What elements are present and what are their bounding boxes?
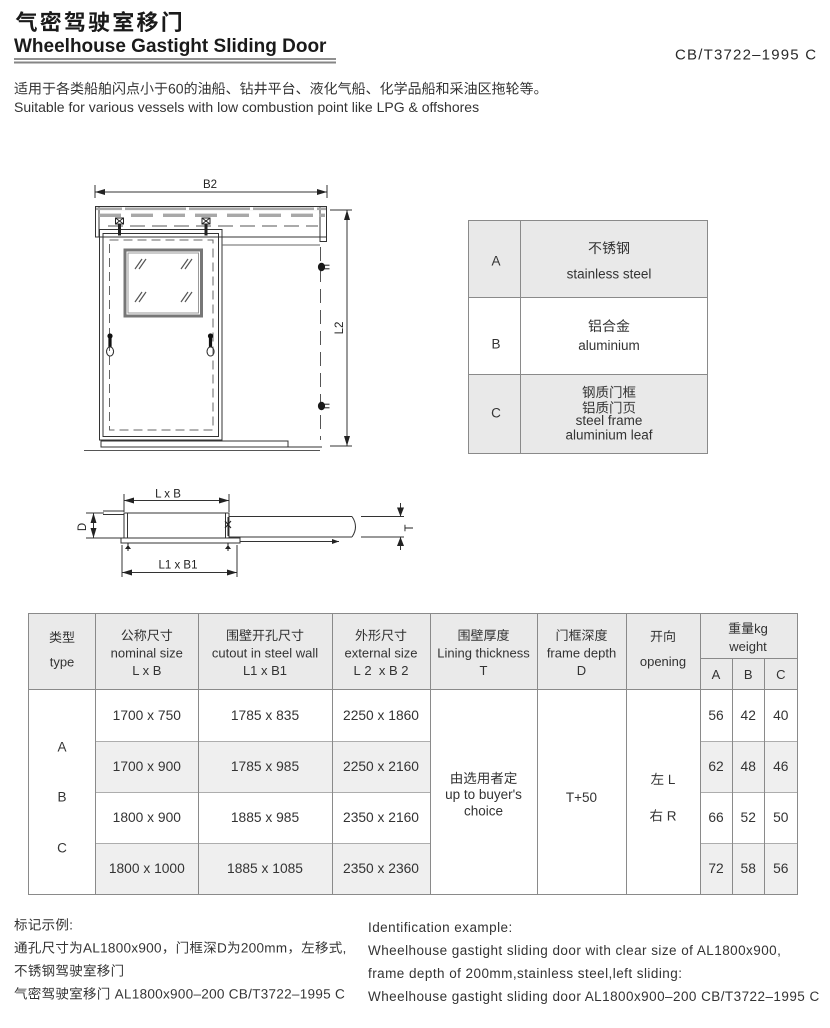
svg-text:1700 x 900: 1700 x 900 — [113, 759, 182, 774]
svg-text:40: 40 — [773, 708, 789, 723]
svg-text:2350 x 2160: 2350 x 2160 — [343, 810, 419, 825]
svg-text:external size: external size — [345, 646, 418, 661]
svg-text:weight: weight — [728, 639, 767, 654]
svg-text:A: A — [57, 740, 66, 755]
svg-text:type: type — [50, 655, 75, 670]
svg-text:2250 x 1860: 2250 x 1860 — [343, 708, 419, 723]
svg-text:frame depth of 200mm,stainless: frame depth of 200mm,stainless steel,lef… — [368, 966, 682, 981]
svg-text:56: 56 — [708, 708, 724, 723]
svg-text:B: B — [491, 337, 500, 352]
svg-text:48: 48 — [741, 759, 757, 774]
svg-text:D: D — [577, 663, 586, 678]
svg-text:L x B: L x B — [132, 663, 161, 678]
svg-text:56: 56 — [773, 861, 789, 876]
svg-text:B: B — [57, 790, 66, 805]
svg-text:opening: opening — [640, 654, 686, 669]
svg-text:L1 x B1: L1 x B1 — [159, 560, 198, 572]
svg-text:L x B: L x B — [155, 489, 181, 501]
svg-text:Wheelhouse Gastight Sliding Do: Wheelhouse Gastight Sliding Door — [14, 36, 327, 57]
svg-text:T+50: T+50 — [566, 790, 597, 805]
svg-text:2350 x 2360: 2350 x 2360 — [343, 861, 419, 876]
svg-text:CB/T3722–1995 C: CB/T3722–1995 C — [675, 47, 817, 64]
svg-text:1785 x 835: 1785 x 835 — [231, 708, 300, 723]
svg-text:1700 x 750: 1700 x 750 — [113, 708, 182, 723]
svg-text:B2: B2 — [203, 179, 217, 191]
svg-text:T: T — [404, 524, 416, 531]
svg-text:up to buyer's: up to buyer's — [445, 787, 522, 802]
svg-text:Identification example:: Identification example: — [368, 920, 513, 935]
svg-text:52: 52 — [741, 810, 756, 825]
svg-text:72: 72 — [708, 861, 723, 876]
svg-text:choice: choice — [464, 804, 503, 819]
svg-text:1800 x 1000: 1800 x 1000 — [109, 861, 185, 876]
svg-text:cutout in steel wall: cutout in steel wall — [212, 646, 318, 661]
svg-text:frame depth: frame depth — [547, 646, 616, 661]
svg-text:L2: L2 — [334, 322, 346, 335]
svg-text:62: 62 — [708, 759, 723, 774]
svg-text:2250 x 2160: 2250 x 2160 — [343, 759, 419, 774]
svg-text:50: 50 — [773, 810, 789, 825]
svg-text:Wheelhouse gastight sliding do: Wheelhouse gastight sliding door with cl… — [368, 943, 781, 958]
svg-text:L 2 x B 2: L 2 x B 2 — [354, 663, 409, 678]
svg-text:nominal size: nominal size — [111, 646, 183, 661]
svg-text:1885 x 985: 1885 x 985 — [231, 810, 300, 825]
svg-text:58: 58 — [741, 861, 757, 876]
svg-text:Lining thickness: Lining thickness — [437, 646, 530, 661]
svg-text:1800 x 900: 1800 x 900 — [113, 810, 182, 825]
svg-text:steel frame: steel frame — [576, 413, 643, 428]
svg-text:aluminium: aluminium — [578, 338, 640, 353]
svg-text:B: B — [744, 667, 753, 682]
svg-text:C: C — [57, 841, 67, 856]
svg-text:D: D — [77, 523, 89, 531]
svg-text:A: A — [712, 667, 721, 682]
svg-text:L1 x B1: L1 x B1 — [243, 663, 287, 678]
svg-text:C: C — [491, 406, 501, 421]
svg-text:42: 42 — [741, 708, 756, 723]
svg-text:1785 x 985: 1785 x 985 — [231, 759, 300, 774]
svg-text:46: 46 — [773, 759, 789, 774]
svg-text:C: C — [776, 667, 785, 682]
svg-text:A: A — [491, 254, 500, 269]
svg-text:stainless steel: stainless steel — [567, 267, 652, 282]
svg-text:Suitable for various vessels w: Suitable for various vessels with low co… — [14, 99, 479, 115]
svg-text:66: 66 — [708, 810, 724, 825]
svg-text:1885 x 1085: 1885 x 1085 — [227, 861, 303, 876]
svg-text:Wheelhouse gastight sliding do: Wheelhouse gastight sliding door AL1800x… — [368, 989, 820, 1004]
svg-text:T: T — [480, 663, 488, 678]
svg-text:aluminium leaf: aluminium leaf — [565, 428, 652, 443]
